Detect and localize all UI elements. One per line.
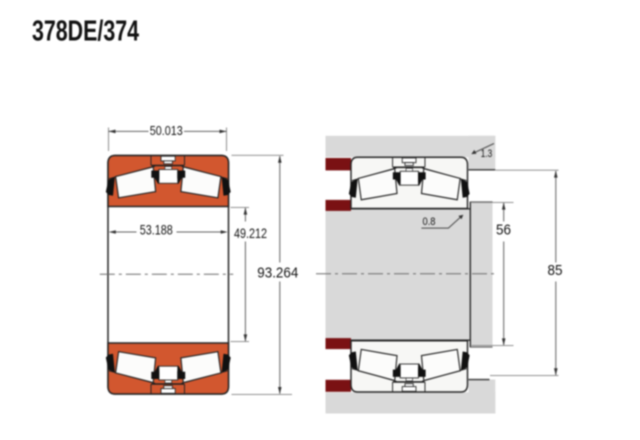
svg-text:93.264: 93.264 xyxy=(257,264,298,281)
svg-text:53.188: 53.188 xyxy=(140,223,173,238)
svg-text:85: 85 xyxy=(548,262,563,279)
svg-text:50.013: 50.013 xyxy=(150,123,183,138)
svg-text:56: 56 xyxy=(496,221,511,238)
svg-text:49.212: 49.212 xyxy=(234,226,267,241)
svg-text:0.8: 0.8 xyxy=(423,216,436,228)
svg-text:378DE/374: 378DE/374 xyxy=(32,16,139,48)
svg-text:1.3: 1.3 xyxy=(481,148,493,160)
